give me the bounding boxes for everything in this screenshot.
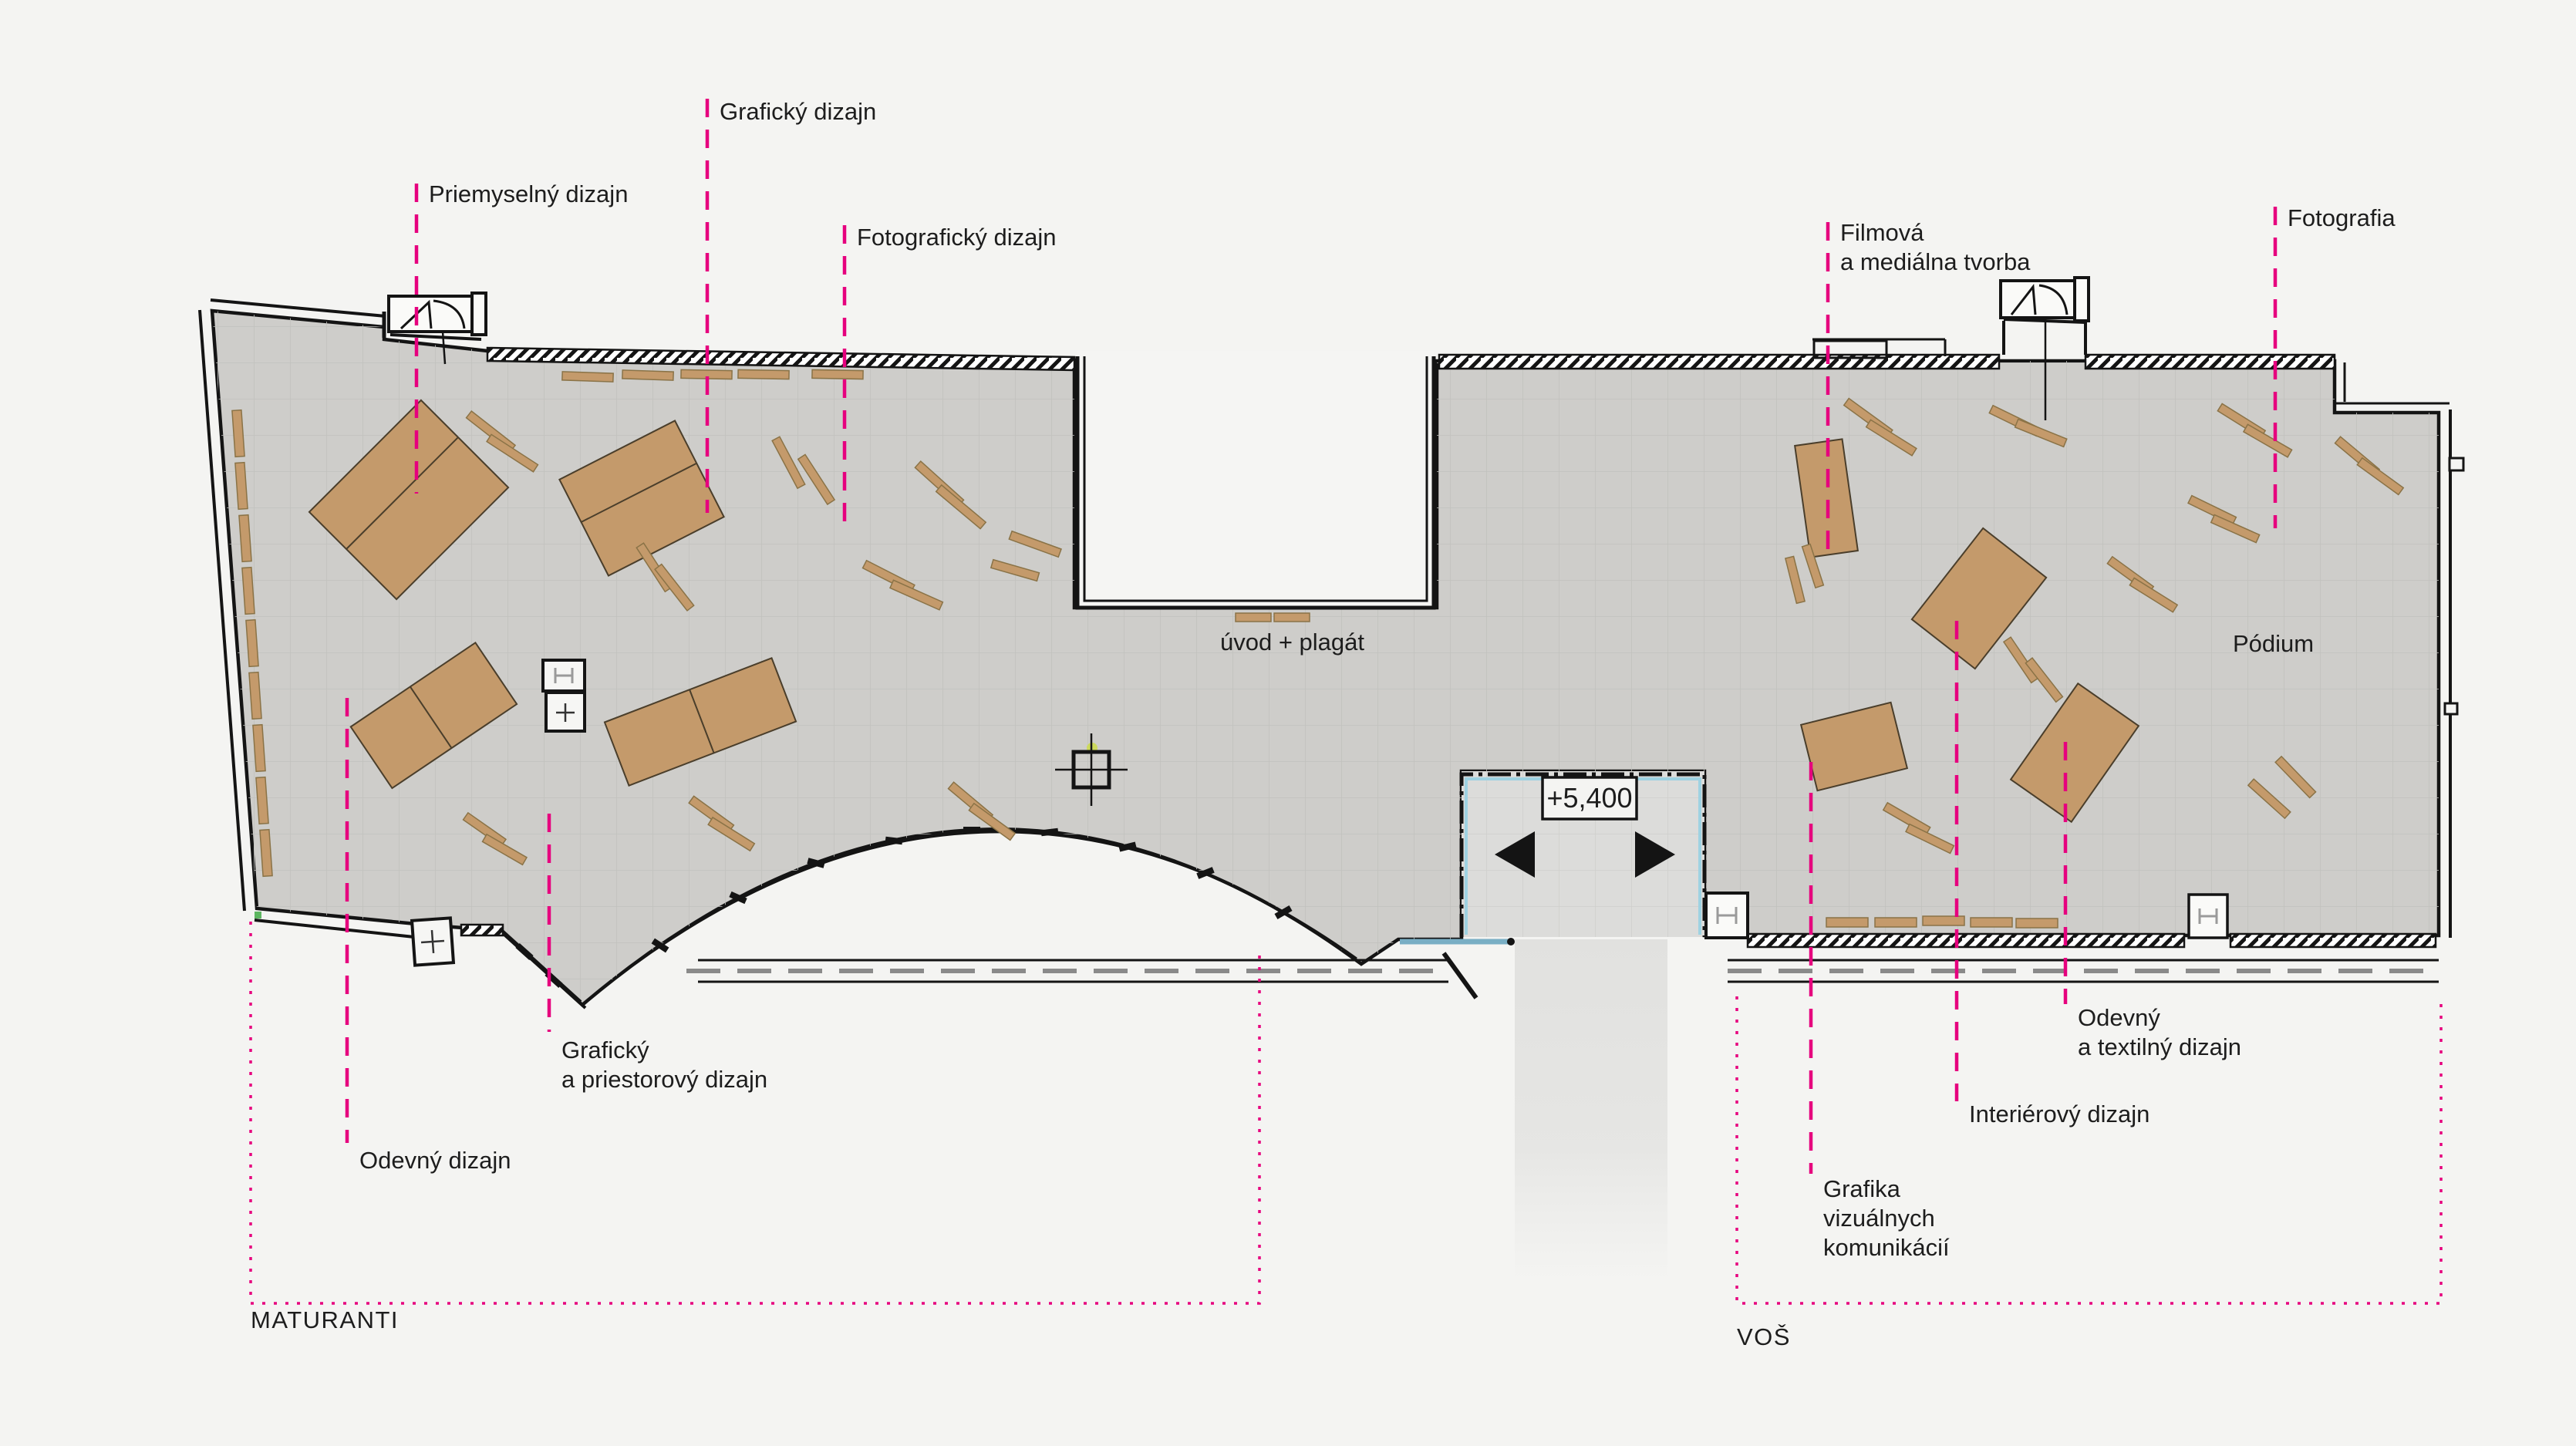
wall-hatch-bottom-right-b [2230,934,2436,947]
wall-stub-lower [2445,703,2457,714]
elevation-value: +5,400 [1546,782,1632,814]
column-box-bottom-left [412,918,453,965]
label-maturanti: MATURANTI [251,1306,399,1333]
label-vos: VOŠ [1737,1323,1791,1350]
column-h-vestibule [1706,893,1748,938]
label-fotografia: Fotografia [2288,204,2396,231]
bracket-maturanti [251,922,1259,1303]
label-graficky-priestorovy-2: a priestorový dizajn [561,1066,767,1093]
label-priemyselny: Priemyselný dizajn [429,180,628,207]
door-jamb [2075,278,2089,321]
door-jamb [472,293,486,335]
label-grafika-vk-2: vizuálnych [1823,1205,1935,1232]
glazing-end-dot [1507,938,1515,945]
service-box-left [543,660,585,731]
label-odevny-textilny-1: Odevný [2078,1004,2160,1031]
label-filmova-1: Filmová [1840,219,1924,246]
label-uvod-plagat: úvod + plagát [1220,629,1364,656]
wall-stub-upper [2450,458,2463,470]
wall-hatch-bottom-right-a [1748,934,2184,947]
label-odevny: Odevný dizajn [359,1147,511,1174]
floor-plan-drawing: +5,400 [0,0,2576,1446]
label-fotograficky: Fotografický dizajn [857,224,1056,251]
label-graficky-priestorovy-1: Grafický [561,1036,649,1063]
label-podium: Pódium [2233,630,2314,657]
roof-notch [1077,351,1434,605]
entrance-ramp [1515,939,1667,1283]
band-slash-tick [1444,953,1476,998]
label-graficky: Grafický dizajn [720,98,876,125]
wall-hatch-top-mid [1439,355,1999,369]
column-h-bottom-right [2189,895,2227,938]
wall-hatch-top-right [2085,355,2335,369]
label-interierovy: Interiérový dizajn [1969,1101,2149,1127]
corner-dot-icon [255,912,261,918]
label-filmova-2: a mediálna tvorba [1840,248,2031,275]
label-grafika-vk-1: Grafika [1823,1175,1901,1202]
label-odevny-textilny-2: a textilný dizajn [2078,1033,2241,1060]
floor-plan-page: +5,400 [0,0,2576,1446]
label-grafika-vk-3: komunikácií [1823,1234,1950,1261]
wall-hatch-bottom-left-stub [461,925,503,935]
door-threshold [390,335,481,339]
